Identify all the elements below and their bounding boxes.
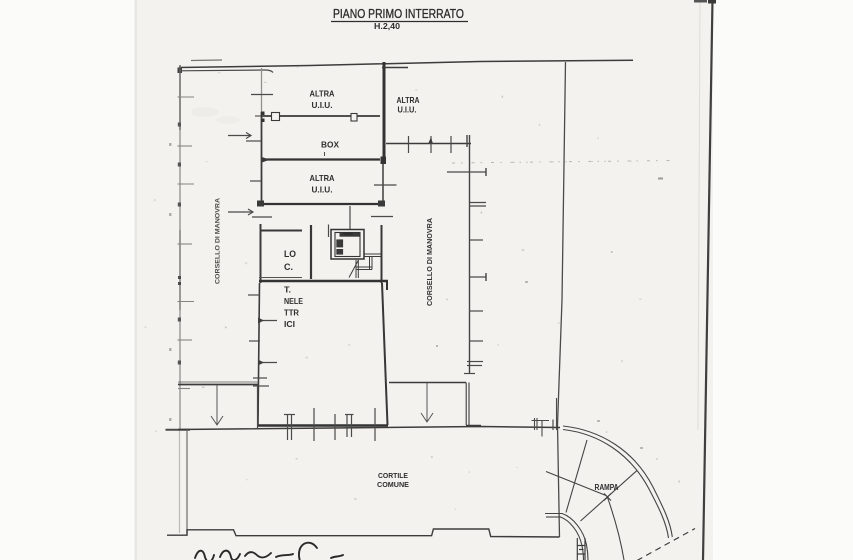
svg-text:U.I.U.: U.I.U. <box>312 185 333 195</box>
svg-text:C.: C. <box>284 262 293 272</box>
svg-text:COMUNE: COMUNE <box>377 482 409 489</box>
svg-text:U.I.U.: U.I.U. <box>312 100 333 110</box>
svg-text:CORSELLO DI MANOVRA: CORSELLO DI MANOVRA <box>425 217 434 306</box>
svg-text:U.I.U.: U.I.U. <box>398 105 417 115</box>
svg-text:ALTRA: ALTRA <box>310 89 335 99</box>
svg-text:ALTRA: ALTRA <box>310 173 335 183</box>
svg-text:ALTRA: ALTRA <box>397 95 420 105</box>
svg-text:BOX: BOX <box>321 140 339 150</box>
svg-text:LO: LO <box>284 249 296 259</box>
svg-text:TTR: TTR <box>284 309 299 318</box>
svg-text:CORTILE: CORTILE <box>378 473 408 480</box>
svg-text:ICI: ICI <box>284 320 295 329</box>
svg-text:CORSELLO DI MANOVRA: CORSELLO DI MANOVRA <box>215 198 222 284</box>
svg-text:RAMPA: RAMPA <box>595 483 619 492</box>
svg-text:PIANO PRIMO INTERRATO: PIANO PRIMO INTERRATO <box>333 6 464 21</box>
svg-text:H.2,40: H.2,40 <box>374 22 401 31</box>
svg-text:T.: T. <box>284 286 291 295</box>
svg-text:NELE: NELE <box>284 297 304 306</box>
